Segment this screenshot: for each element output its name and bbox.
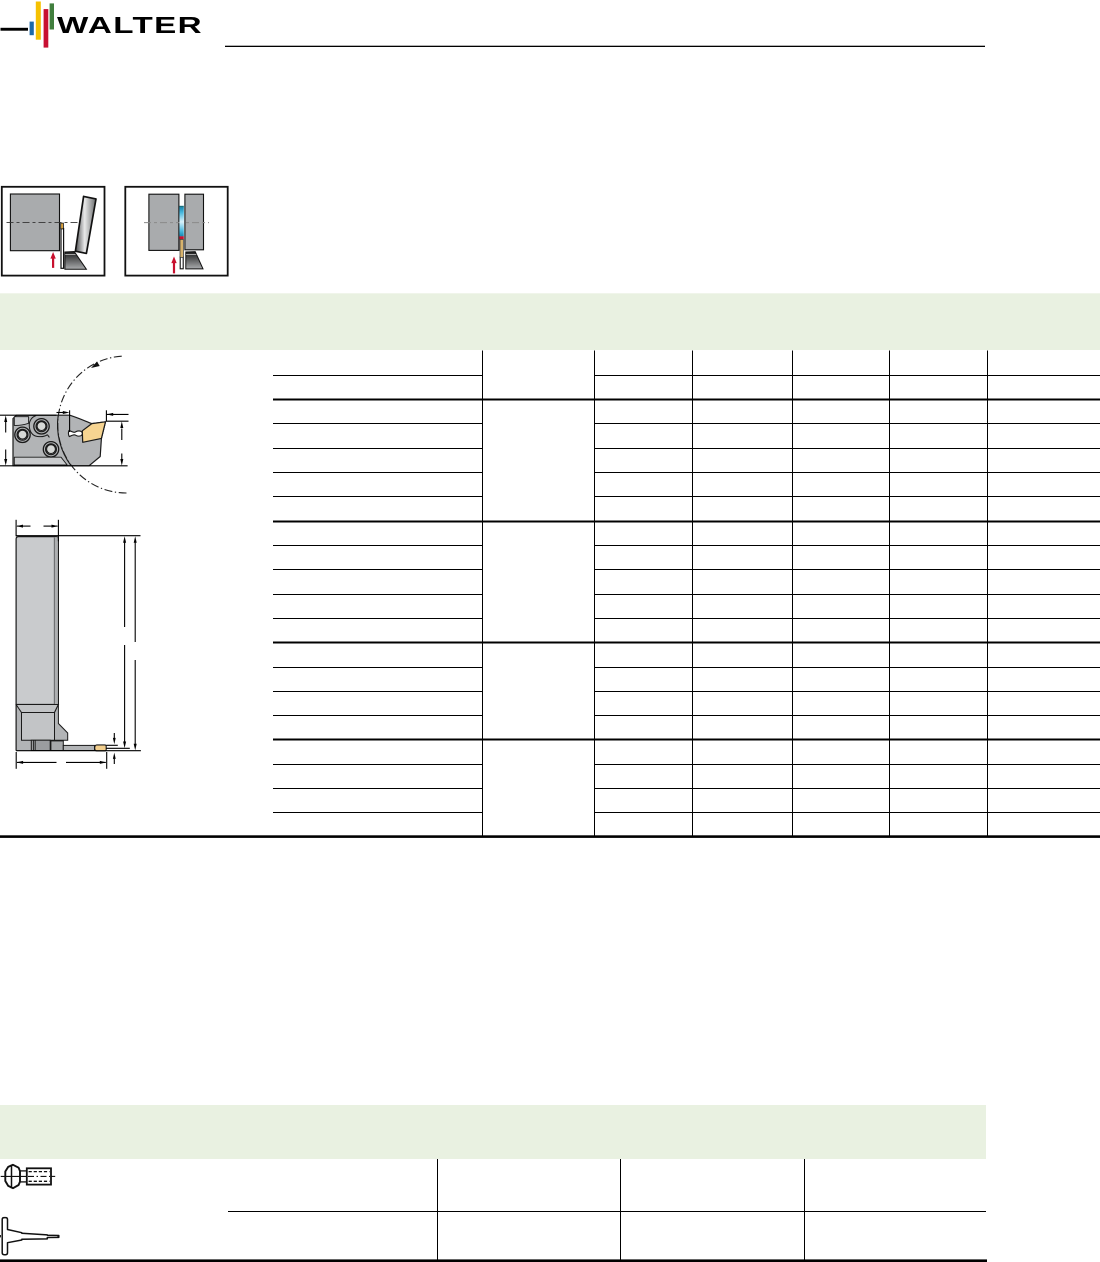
svg-text:WALTER: WALTER: [57, 12, 203, 38]
